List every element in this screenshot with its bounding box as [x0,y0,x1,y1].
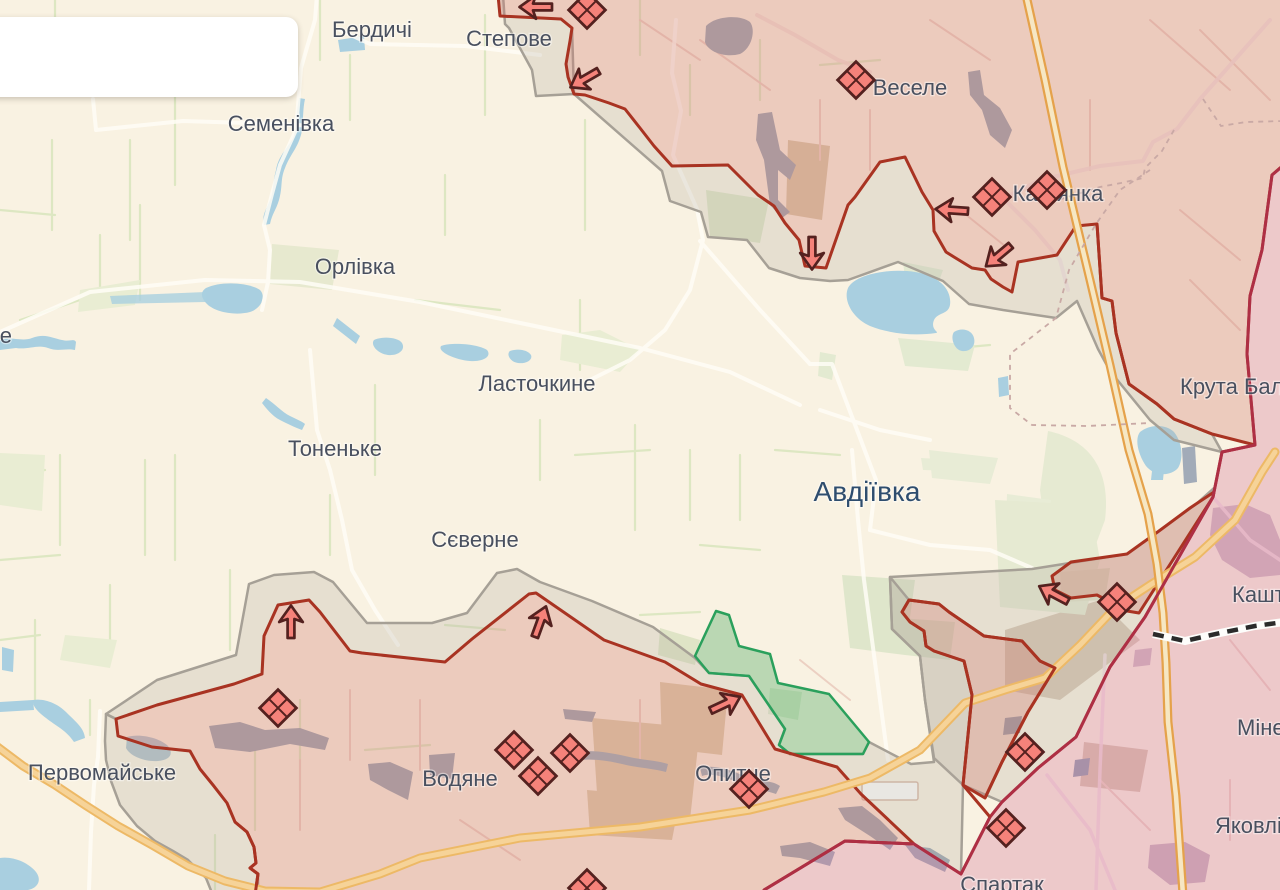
svg-text:Бердичі: Бердичі [332,17,412,42]
svg-text:Крута Балка: Крута Балка [1180,374,1280,399]
svg-text:Тоненьке: Тоненьке [288,436,382,461]
svg-text:Ласточкине: Ласточкине [478,371,595,396]
svg-text:Мінеральне: Мінеральне [1237,715,1280,740]
svg-text:Степове: Степове [466,26,552,51]
svg-text:Яковлівка: Яковлівка [1215,813,1280,838]
svg-text:Авдіївка: Авдіївка [814,476,921,507]
svg-text:Водяне: Водяне [422,766,498,791]
svg-text:Каштанове: Каштанове [1232,582,1280,607]
svg-text:Веселе: Веселе [873,75,948,100]
svg-text:Первомайське: Первомайське [28,760,176,785]
svg-text:Семенівка: Семенівка [228,111,335,136]
svg-text:Орлівка: Орлівка [315,254,396,279]
svg-text:Нетайлове: Нетайлове [0,323,12,348]
svg-text:Сєверне: Сєверне [431,527,518,552]
svg-text:Спартак: Спартак [960,872,1044,890]
